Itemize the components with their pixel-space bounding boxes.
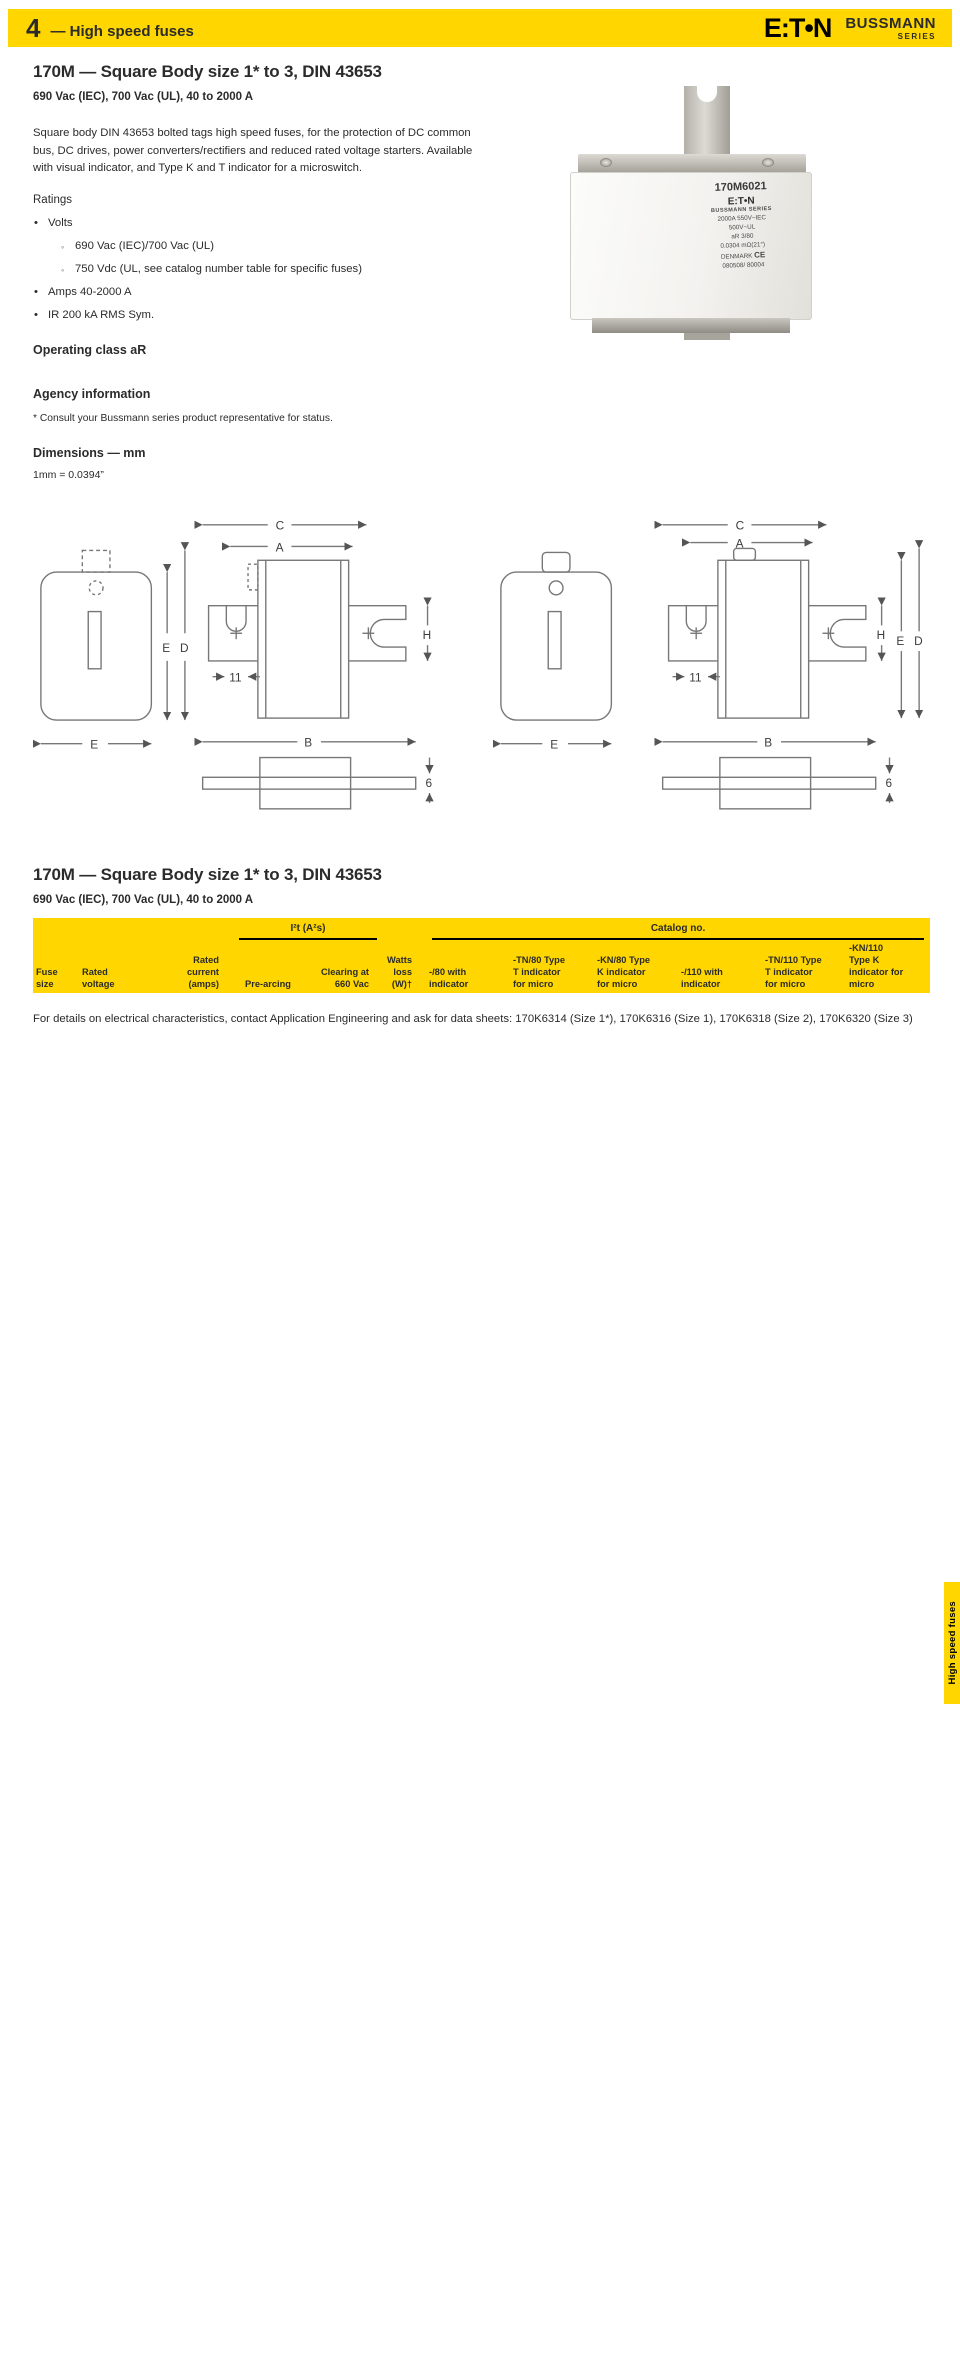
dim-label-A: A (276, 540, 284, 554)
dim-label-E: E (162, 641, 170, 655)
fuse-bottom-blade (684, 333, 730, 340)
bussmann-label: BUSSMANN (845, 16, 936, 31)
chapter-band: 4 — High speed fuses E:T•N BUSSMANN SERI… (8, 9, 952, 47)
bullet-item: Amps 40-2000 A (33, 286, 927, 298)
agency-footnote: * Consult your Bussmann series product r… (33, 413, 927, 424)
group-header-spacer (33, 918, 233, 940)
catalog-table: I²t (A²s) Catalog no. Fuse size Rated vo… (33, 918, 930, 993)
dim-label-D: D (180, 641, 189, 655)
screw-icon (762, 158, 774, 167)
dimension-tables (33, 817, 927, 831)
col-header-tn110: -TN/110 Type T indicator for micro (762, 940, 846, 993)
dim-label-B: B (764, 735, 772, 749)
dim-label-B: B (304, 735, 312, 749)
bullet-item: Volts690 Vac (IEC)/700 Vac (UL)750 Vdc (… (33, 217, 927, 275)
section-side-tab: High speed fuses (944, 1582, 960, 1704)
closing-paragraph: For details on electrical characteristic… (33, 1011, 960, 1029)
dim-label-C: C (276, 518, 285, 532)
i2t-group-label: I²t (A²s) (239, 922, 377, 940)
fuse-part-number: 170M6021 (680, 179, 802, 195)
col-header-watts-loss: Watts loss (W)† (383, 940, 426, 993)
dim-label-A: A (736, 536, 744, 550)
dim-label-D: D (914, 634, 923, 648)
screw-icon (600, 158, 612, 167)
dim-label-11: 11 (229, 670, 241, 684)
dimension-diagrams: E E D C A 11 H B 6 (33, 493, 927, 813)
catalog-no-group-header: Catalog no. (426, 918, 930, 940)
col-header-kn80: -KN/80 Type K indicator for micro (594, 940, 678, 993)
dim-label-H: H (877, 628, 886, 642)
sub-bullet-list: 690 Vac (IEC)/700 Vac (UL)750 Vdc (UL, s… (48, 240, 927, 275)
dim-label-H: H (423, 628, 432, 642)
col-header-fuse-size: Fuse size (33, 940, 79, 993)
catalog-section-title: 170M — Square Body size 1* to 3, DIN 436… (33, 865, 927, 885)
sub-bullet-item: 690 Vac (IEC)/700 Vac (UL) (61, 240, 927, 252)
datasheet-page: 4 — High speed fuses E:T•N BUSSMANN SERI… (0, 0, 960, 2371)
dim-label-6: 6 (426, 776, 433, 790)
side-tab-label: High speed fuses (947, 1601, 958, 1684)
catalog-no-group-label: Catalog no. (432, 922, 924, 940)
page-title: 170M — Square Body size 1* to 3, DIN 436… (33, 62, 927, 82)
chapter-number: 4 (26, 15, 40, 41)
diagram-tn-type: E E D C A 11 H B 6 (33, 493, 467, 813)
dim-label-11: 11 (689, 670, 701, 684)
dim-table-kn (513, 817, 927, 831)
dimensions-heading: Dimensions — mm (33, 446, 927, 460)
product-photo: 170M6021 E:T•N BUSSMANN SERIES 2000A 550… (566, 86, 824, 340)
description-paragraph: Square body DIN 43653 bolted tags high s… (33, 125, 488, 178)
sub-bullet-item: 750 Vdc (UL, see catalog number table fo… (61, 263, 927, 275)
catalog-group-header-row: I²t (A²s) Catalog no. (33, 918, 930, 940)
i2t-group-header: I²t (A²s) (233, 918, 383, 940)
col-header-pre-arcing: Pre-arcing (233, 940, 305, 993)
dim-label-C: C (736, 518, 745, 532)
col-header-tn80: -TN/80 Type T indicator for micro (510, 940, 594, 993)
catalog-table-wrap: I²t (A²s) Catalog no. Fuse size Rated vo… (33, 918, 927, 993)
catalog-section-subtitle: 690 Vac (IEC), 700 Vac (UL), 40 to 2000 … (33, 894, 927, 906)
catalog-column-header-row: Fuse size Rated voltage Rated current (a… (33, 940, 930, 993)
chapter-title-text: High speed fuses (70, 23, 194, 40)
col-header-rated-current: Rated current (amps) (175, 940, 233, 993)
col-header-kn110: -KN/110 Type K indicator for micro (846, 940, 930, 993)
diagram-kn-type: E C A 11 H E D B 6 (493, 493, 927, 813)
brand-block: E:T•N BUSSMANN SERIES (764, 13, 936, 44)
bussmann-wordmark: BUSSMANN SERIES (845, 16, 936, 41)
dimensions-note: 1mm = 0.0394” (33, 469, 927, 481)
group-header-spacer (383, 918, 426, 940)
dim-label-E: E (896, 634, 904, 648)
col-header-rated-voltage: Rated voltage (79, 940, 175, 993)
operating-class-heading: Operating class aR (33, 343, 927, 357)
col-header-80-indicator: -/80 with indicator (426, 940, 510, 993)
series-label: SERIES (845, 33, 936, 41)
col-header-clearing: Clearing at 660 Vac (305, 940, 383, 993)
dim-table-tn (33, 817, 471, 831)
dim-label-6: 6 (886, 776, 893, 790)
chapter-title: — High speed fuses (50, 17, 193, 40)
catalog-table-head: I²t (A²s) Catalog no. Fuse size Rated vo… (33, 918, 930, 993)
col-header-110-indicator: -/110 with indicator (678, 940, 762, 993)
agency-heading: Agency information (33, 387, 927, 401)
bullet-item: IR 200 kA RMS Sym. (33, 309, 927, 321)
dim-label-E: E (550, 737, 558, 751)
eaton-logo: E:T•N (764, 13, 831, 44)
dim-label-E: E (90, 737, 98, 751)
